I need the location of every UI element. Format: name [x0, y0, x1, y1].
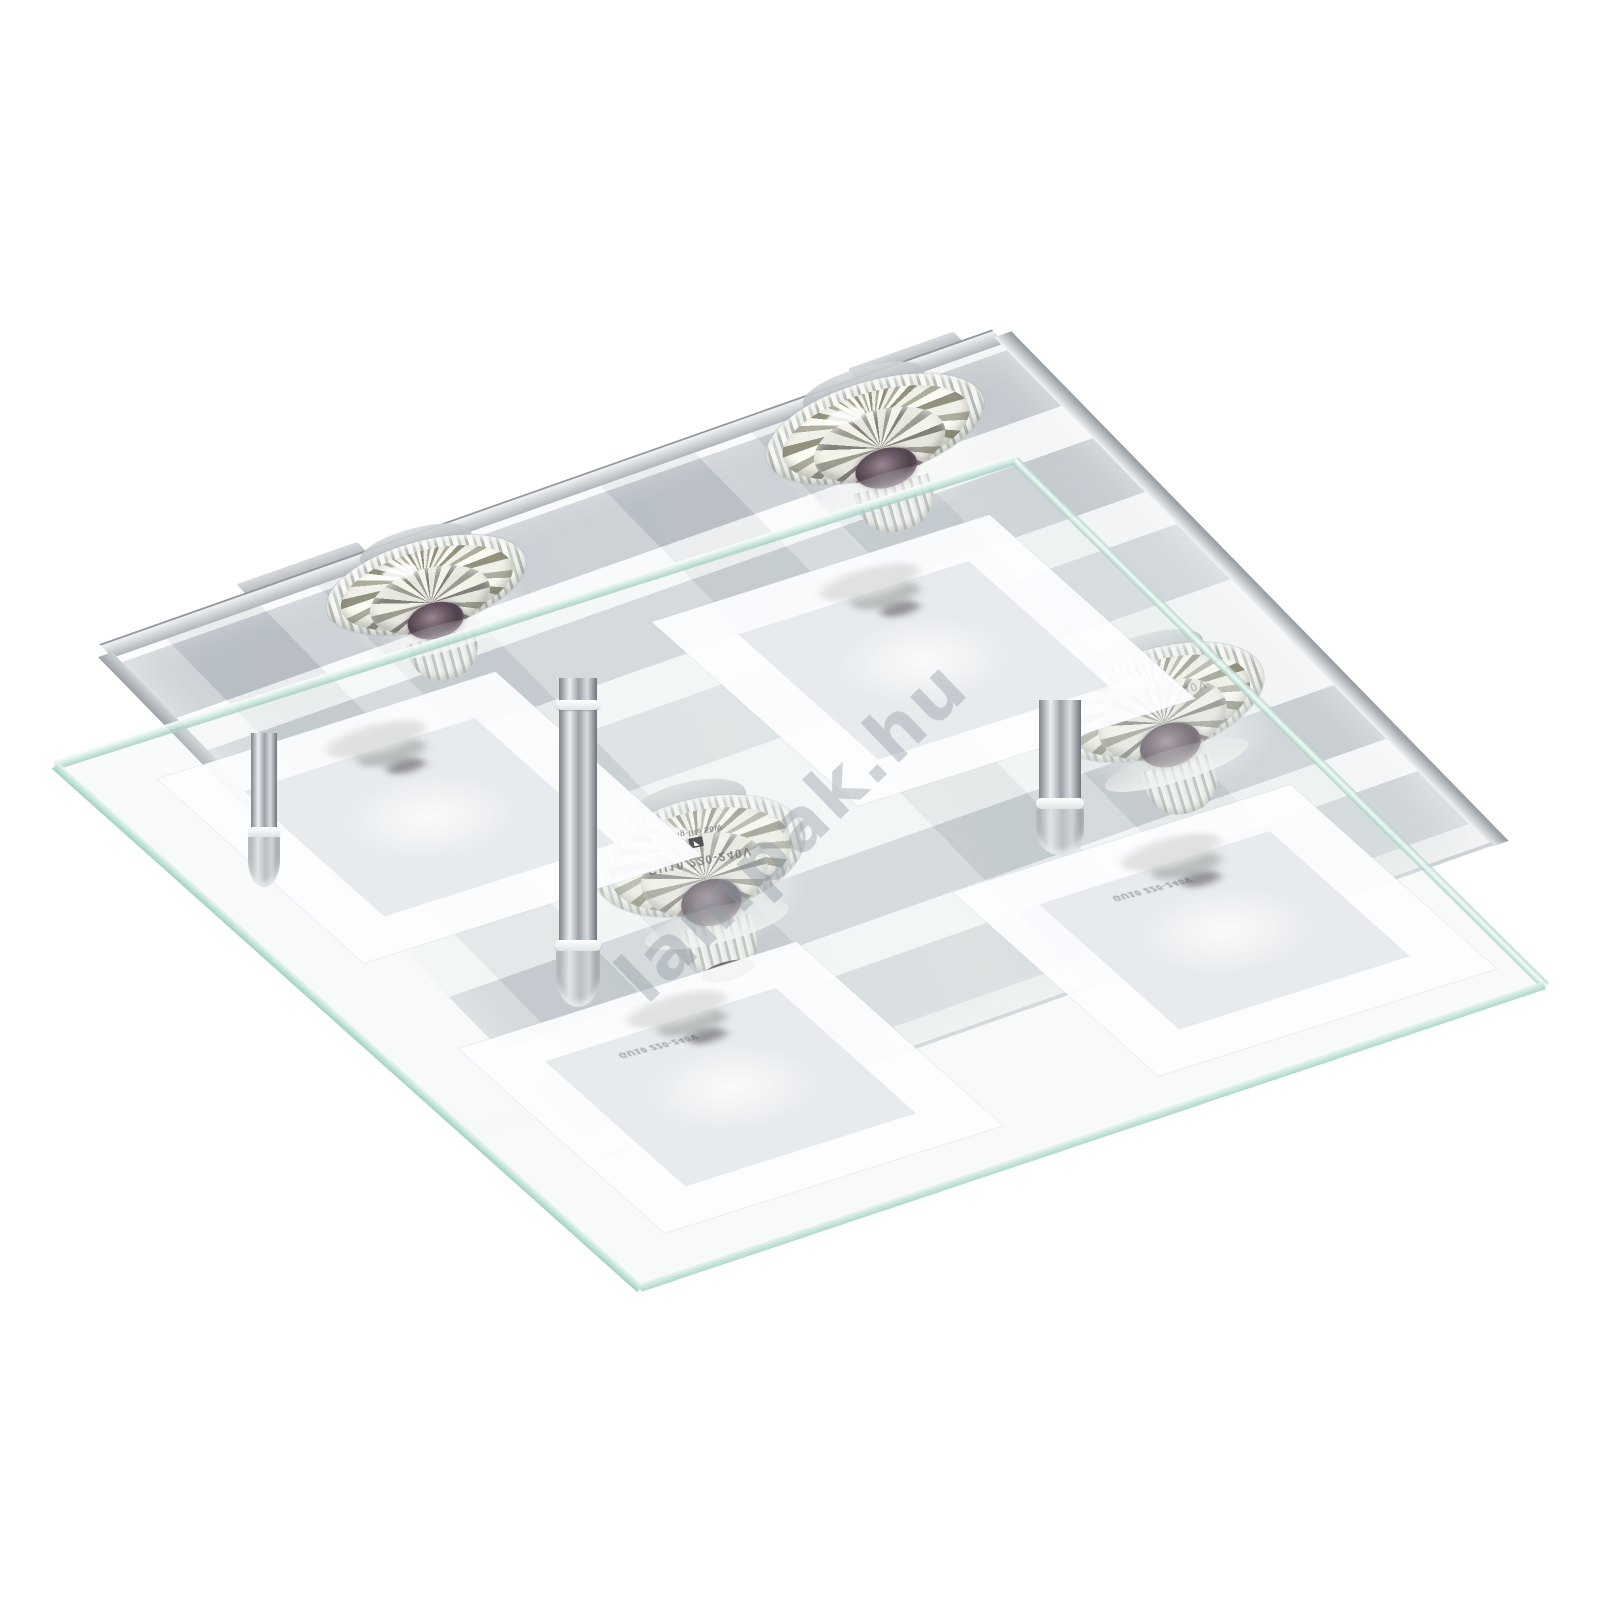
rod-ring — [248, 827, 280, 837]
standoff-rod-center-left — [556, 678, 600, 1010]
rod-ring — [556, 700, 600, 710]
standoff-rod-center-right — [1036, 700, 1084, 858]
rod-shaft — [1039, 700, 1081, 800]
product-photo-ceiling-light: GU10 220-240V GU10 220-240V ◤ long-life … — [0, 0, 1600, 1599]
rod-ring — [555, 940, 601, 951]
standoff-rod-far-left — [248, 733, 280, 905]
rod-shaft — [251, 733, 277, 829]
rod-shaft — [559, 678, 597, 941]
rod-cap — [248, 837, 280, 887]
rod-cap — [556, 951, 600, 1007]
rod-ring — [1036, 798, 1084, 809]
rod-cap — [1036, 809, 1084, 855]
